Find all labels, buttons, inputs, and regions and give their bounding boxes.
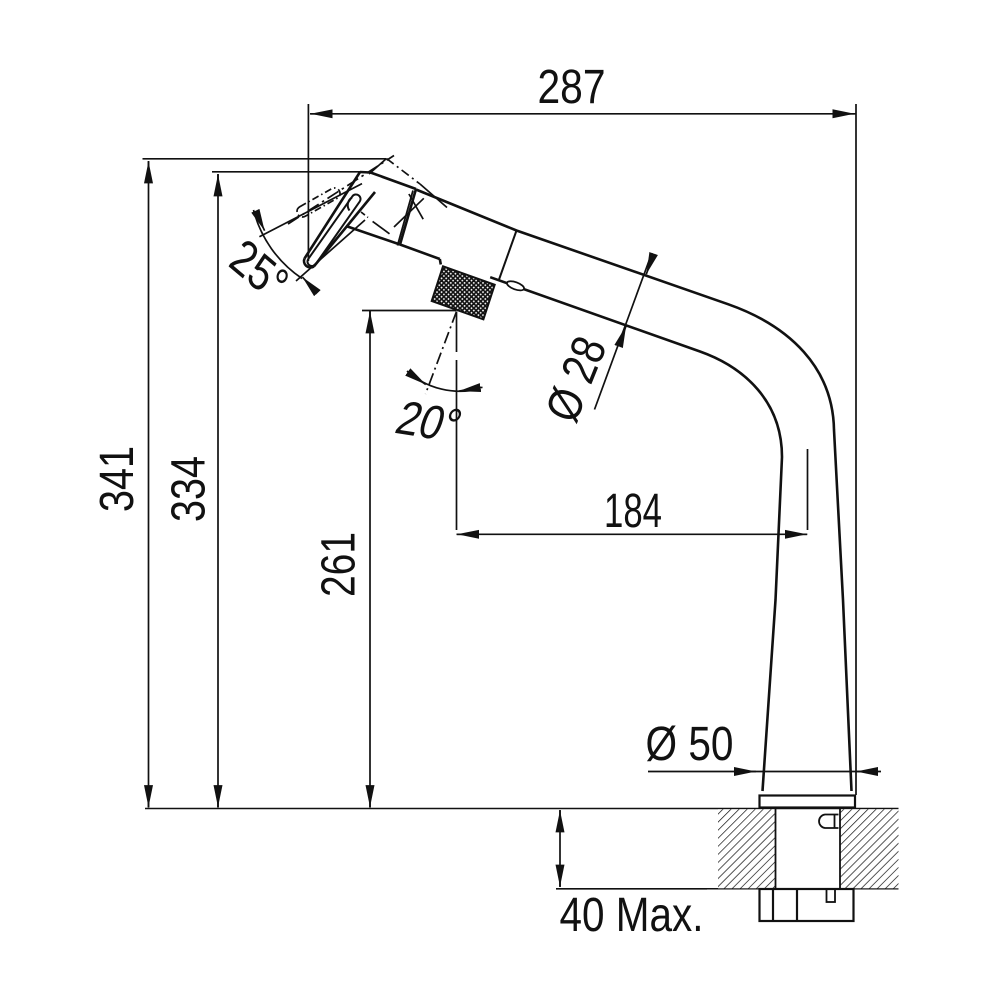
svg-text:334: 334 xyxy=(163,456,216,522)
svg-text:184: 184 xyxy=(604,485,662,538)
svg-text:Ø 50: Ø 50 xyxy=(646,718,734,771)
svg-text:341: 341 xyxy=(91,446,144,512)
svg-text:287: 287 xyxy=(538,61,606,114)
svg-text:40 Max.: 40 Max. xyxy=(560,889,704,942)
svg-text:261: 261 xyxy=(313,532,366,597)
